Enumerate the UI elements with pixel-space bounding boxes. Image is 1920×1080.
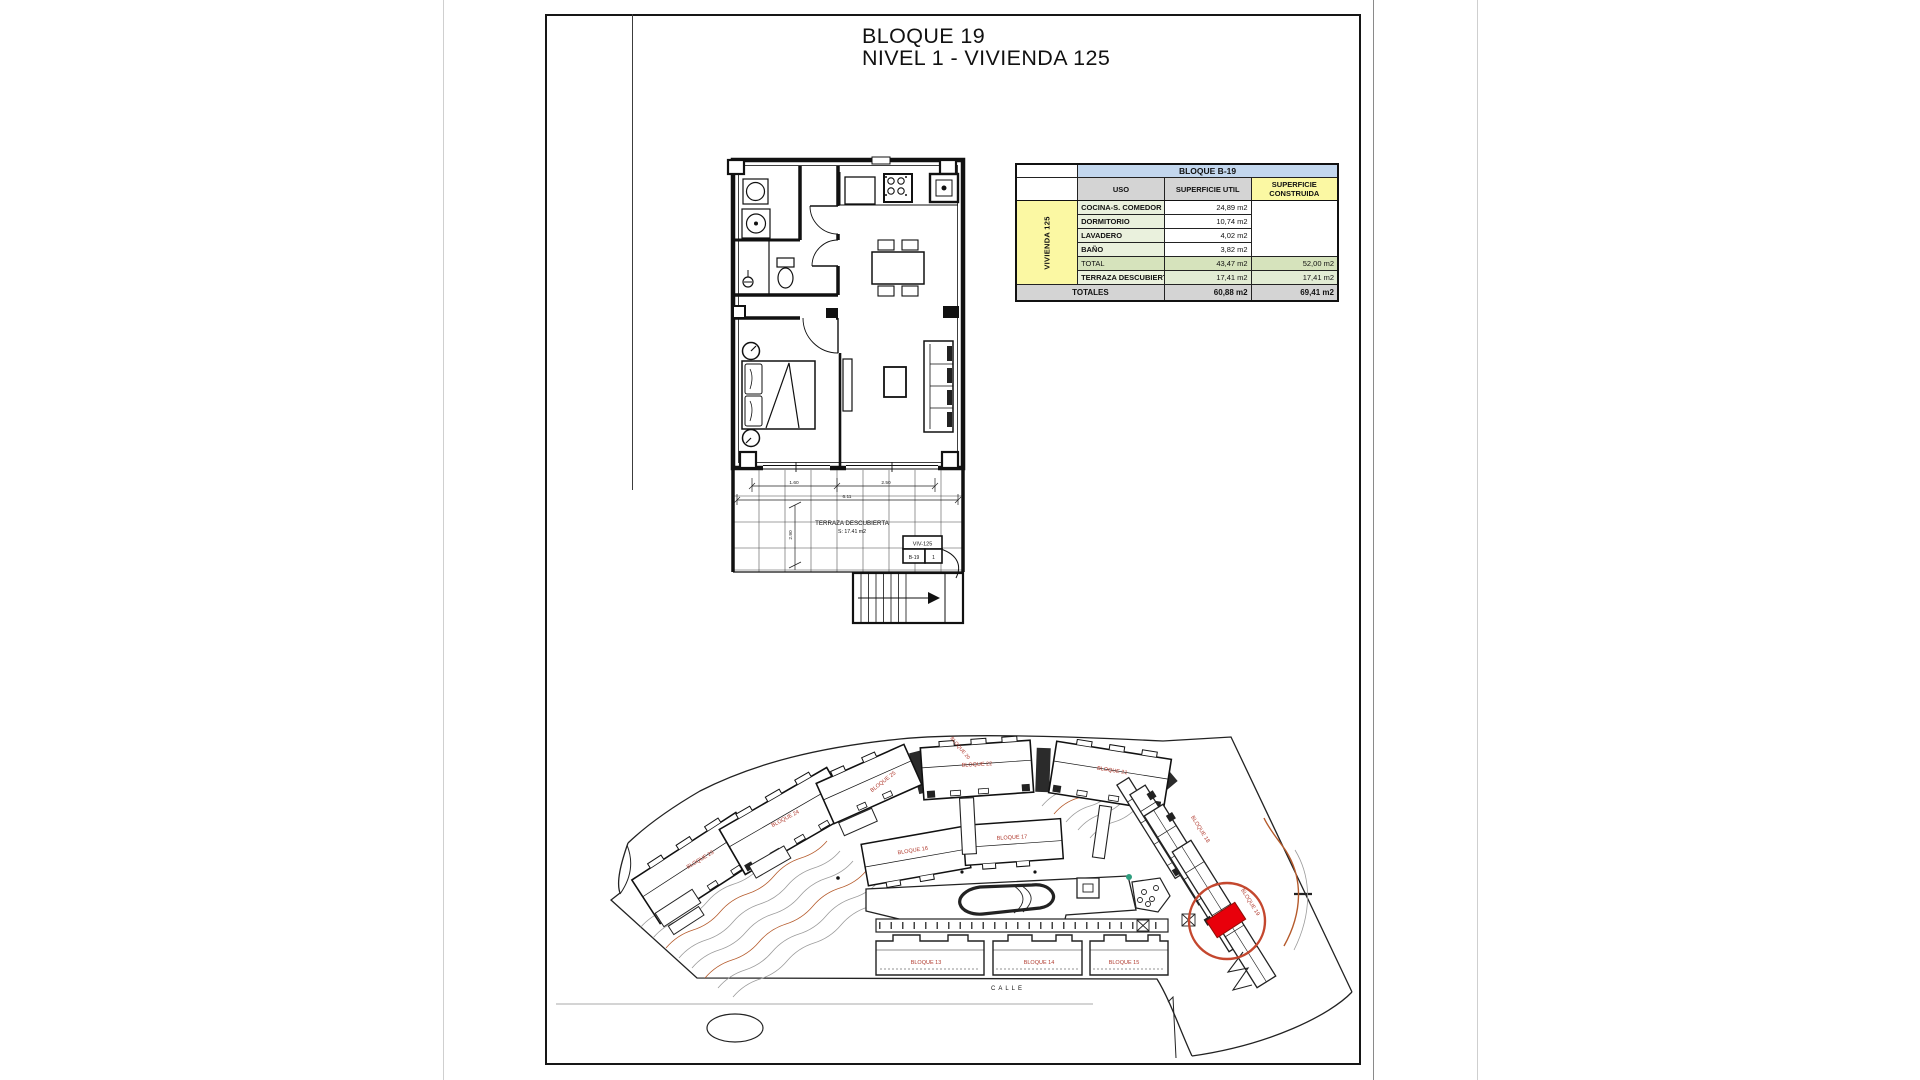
row-util-dormitorio: 10,74 m2 [1164, 215, 1251, 229]
dim-6-11: 6.11 [843, 494, 852, 500]
unit-tag-level: 1 [932, 555, 935, 561]
row-construida-total: 52,00 m2 [1251, 257, 1338, 271]
row-util-bano: 3,82 m2 [1164, 243, 1251, 257]
access-corridor [876, 919, 1168, 932]
kitchen [840, 172, 958, 205]
crosshatch-box [1137, 920, 1149, 931]
label-bloque-14: BLOQUE 14 [1024, 960, 1055, 966]
row-uso-dormitorio: DORMITORIO [1078, 215, 1165, 229]
title-block-line: BLOQUE 19 [862, 25, 1110, 47]
terrace-label: TERRAZA DESCUBIERTA [815, 520, 890, 527]
col-header-uso: USO [1078, 178, 1165, 201]
page-right-edge [1477, 0, 1478, 1080]
row-util-lavadero: 4,02 m2 [1164, 229, 1251, 243]
toilet-tank [777, 258, 794, 267]
site-plan-drawing: BLOQUE 23 BLOQUE 24 BLOQUE 25 BLOQUE 22 … [545, 620, 1359, 1063]
door-arc-bathroom [812, 240, 838, 266]
vivienda-group-label: VIVIENDA 125 [1016, 201, 1078, 285]
drawing-title: BLOQUE 19 NIVEL 1 - VIVIENDA 125 [862, 25, 1110, 69]
dining-table [872, 252, 924, 284]
unit-tag-block: B-19 [909, 555, 920, 561]
street-label: CALLE [991, 986, 1025, 992]
surface-area-table: BLOQUE B-19 USO SUPERFICIE UTIL SUPERFIC… [1015, 163, 1339, 302]
door-arc-bedroom [803, 318, 838, 353]
washer-icon [747, 183, 765, 201]
terrace-sliding-doors [763, 462, 938, 472]
label-bloque-19: BLOQUE 19 [1239, 888, 1260, 917]
totales-util: 60,88 m2 [1164, 285, 1251, 302]
col-header-superficie-construida: SUPERFICIE CONSTRUIDA [1251, 178, 1338, 201]
row-util-total: 43,47 m2 [1164, 257, 1251, 271]
traffic-island [707, 1014, 763, 1042]
dim-vertical: 2.90 [788, 530, 794, 540]
row-uso-terraza: TERRAZA DESCUBIERTA [1078, 271, 1165, 285]
row-uso-total: TOTAL [1078, 257, 1165, 271]
table-corner-cell [1016, 164, 1078, 178]
blanket-fold [766, 363, 799, 428]
dining-area [872, 240, 924, 296]
hall-doors [733, 166, 959, 353]
row-construida-terraza: 17,41 m2 [1251, 271, 1338, 285]
row-util-terraza: 17,41 m2 [1164, 271, 1251, 285]
building-block-16 [861, 826, 972, 890]
toilet-icon [778, 268, 793, 288]
bedroom [742, 343, 815, 447]
building-block-17 [963, 819, 1064, 871]
row-uso-bano: BAÑO [1078, 243, 1165, 257]
plan-sheet: BLOQUE 19 NIVEL 1 - VIVIENDA 125 BLOQUE … [0, 0, 1920, 1080]
page-left-edge [443, 0, 444, 1080]
floor-plan-drawing: TERRAZA DESCUBIERTA S: 17.41 m2 1.60 2.5… [700, 148, 1010, 640]
sheet-right-border [1373, 0, 1374, 1080]
dim-1-60: 1.60 [789, 480, 799, 486]
totales-construida: 69,41 m2 [1251, 285, 1338, 302]
terrace-area: S: 17.41 m2 [838, 529, 866, 535]
dim-2-50: 2.50 [881, 480, 891, 486]
table-corner-cell2 [1016, 178, 1078, 201]
label-bloque-18: BLOQUE 18 [1189, 815, 1210, 844]
living-room [838, 318, 953, 468]
construida-merged-cell [1251, 201, 1338, 257]
totales-label: TOTALES [1016, 285, 1164, 302]
label-bloque-13: BLOQUE 13 [911, 960, 942, 966]
door-arc-kitchen [810, 206, 838, 234]
pavilion [1077, 878, 1099, 898]
row-util-cocina: 24,89 m2 [1164, 201, 1251, 215]
stove-icon [884, 174, 912, 202]
detail-divider-line [632, 14, 633, 490]
sink-cabinet [845, 177, 875, 204]
tv-sideboard [843, 359, 852, 411]
bed [742, 361, 815, 429]
coffee-table [884, 367, 906, 397]
laundry-room [733, 166, 800, 240]
tree-marker [1126, 874, 1132, 880]
playground [1132, 878, 1170, 912]
bathroom [733, 240, 838, 295]
table-block-header: BLOQUE B-19 [1078, 164, 1338, 178]
unit-tag-viv: VIV-125 [913, 542, 933, 548]
col-header-superficie-util: SUPERFICIE UTIL [1164, 178, 1251, 201]
label-bloque-15: BLOQUE 15 [1109, 960, 1140, 966]
title-level-line: NIVEL 1 - VIVIENDA 125 [862, 47, 1110, 69]
row-uso-cocina: COCINA-S. COMEDOR [1078, 201, 1165, 215]
row-uso-lavadero: LAVADERO [1078, 229, 1165, 243]
